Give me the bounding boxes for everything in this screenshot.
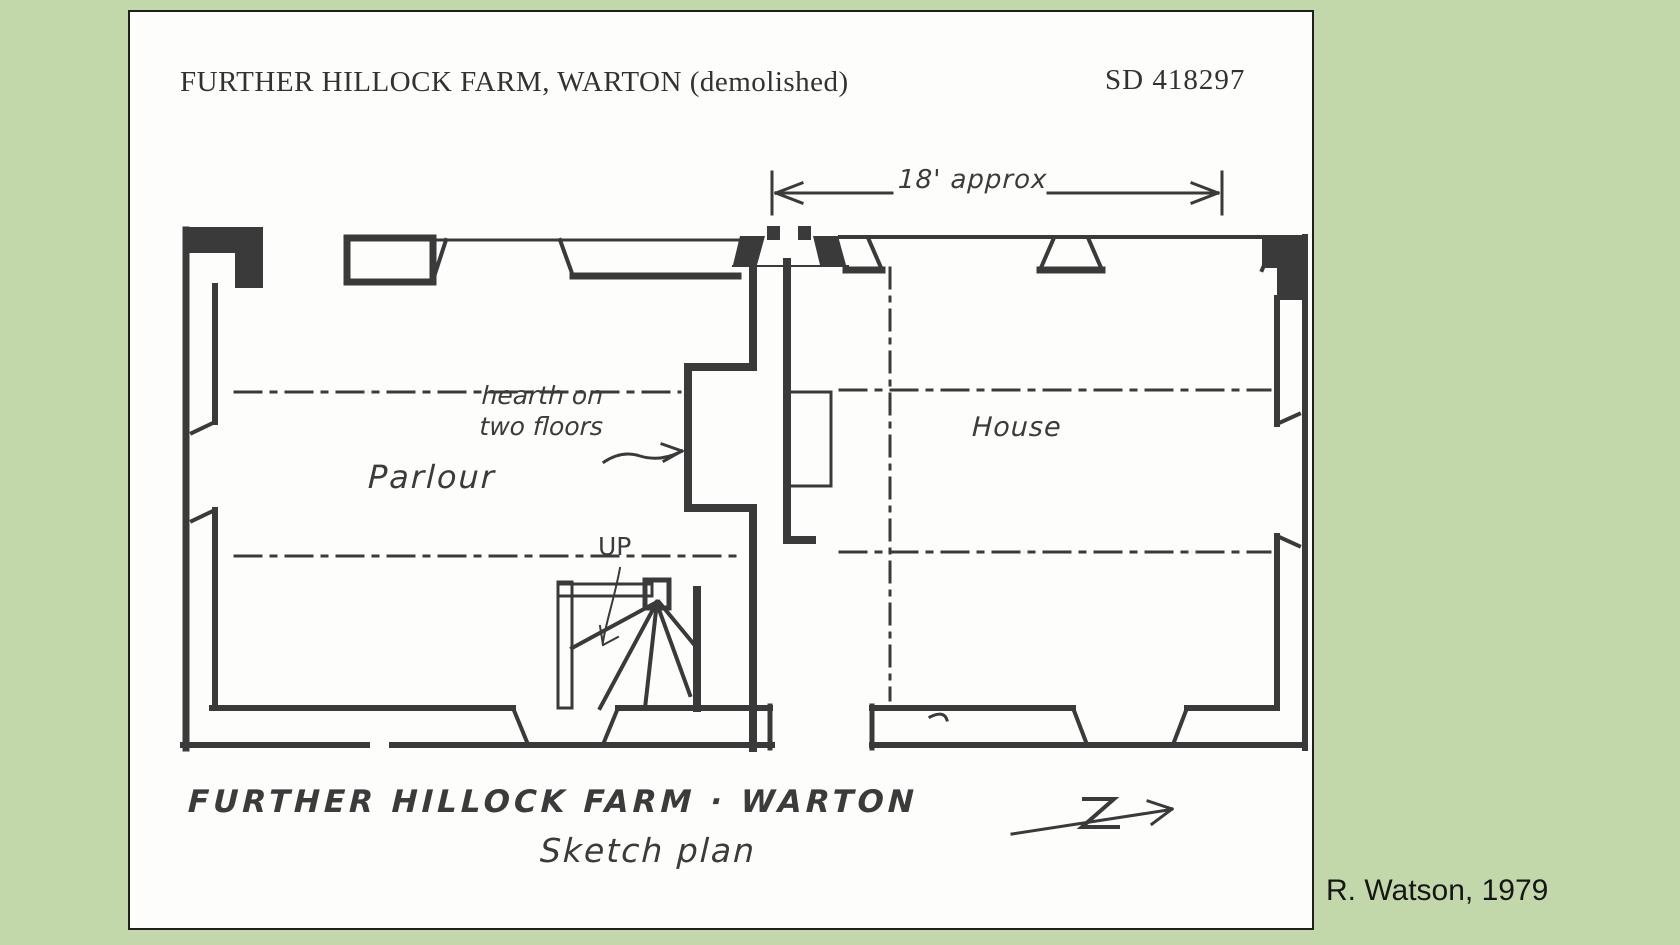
house-fireplace [787,392,831,486]
west-wall [183,227,263,748]
plan-caption-line2: Sketch plan [539,831,756,870]
door-swing [930,714,947,720]
hearth-note-line1: hearth on [480,380,605,411]
south-window-reveals [513,708,618,742]
winder-stair [558,568,697,708]
north-arrow [1012,799,1172,834]
door-post [767,226,780,240]
north-window-reveals [869,240,1275,270]
screenshot-root: FURTHER HILLOCK FARM, WARTON (demolished… [0,0,1680,945]
south-wall-west [183,706,772,748]
south-wall-east [872,706,1305,748]
hearth-chimney-bay [688,262,831,748]
stair-treads [572,602,697,708]
plan-caption-line1: FURTHER HILLOCK FARM · WARTON [187,784,918,820]
room-label-parlour: Parlour [367,458,496,496]
stair-up-label: UP [598,532,631,561]
east-wall [1277,237,1305,748]
south-window-reveals-east [1073,708,1187,742]
blocked-window [347,238,433,282]
dimension-label: 18' approx [897,165,1047,195]
hearth-note-arrow [604,444,682,462]
north-wall-east [840,237,1307,300]
credit-text: R. Watson, 1979 [1326,874,1548,908]
north-wall-west [347,238,740,282]
door-post [798,226,811,240]
hearth-note-line2: two floors [479,411,604,442]
west-window-reveals [192,422,215,521]
east-window-reveals [1277,414,1299,546]
hearth-note: hearth on two floors [479,380,605,443]
room-label-house: House [971,412,1062,443]
